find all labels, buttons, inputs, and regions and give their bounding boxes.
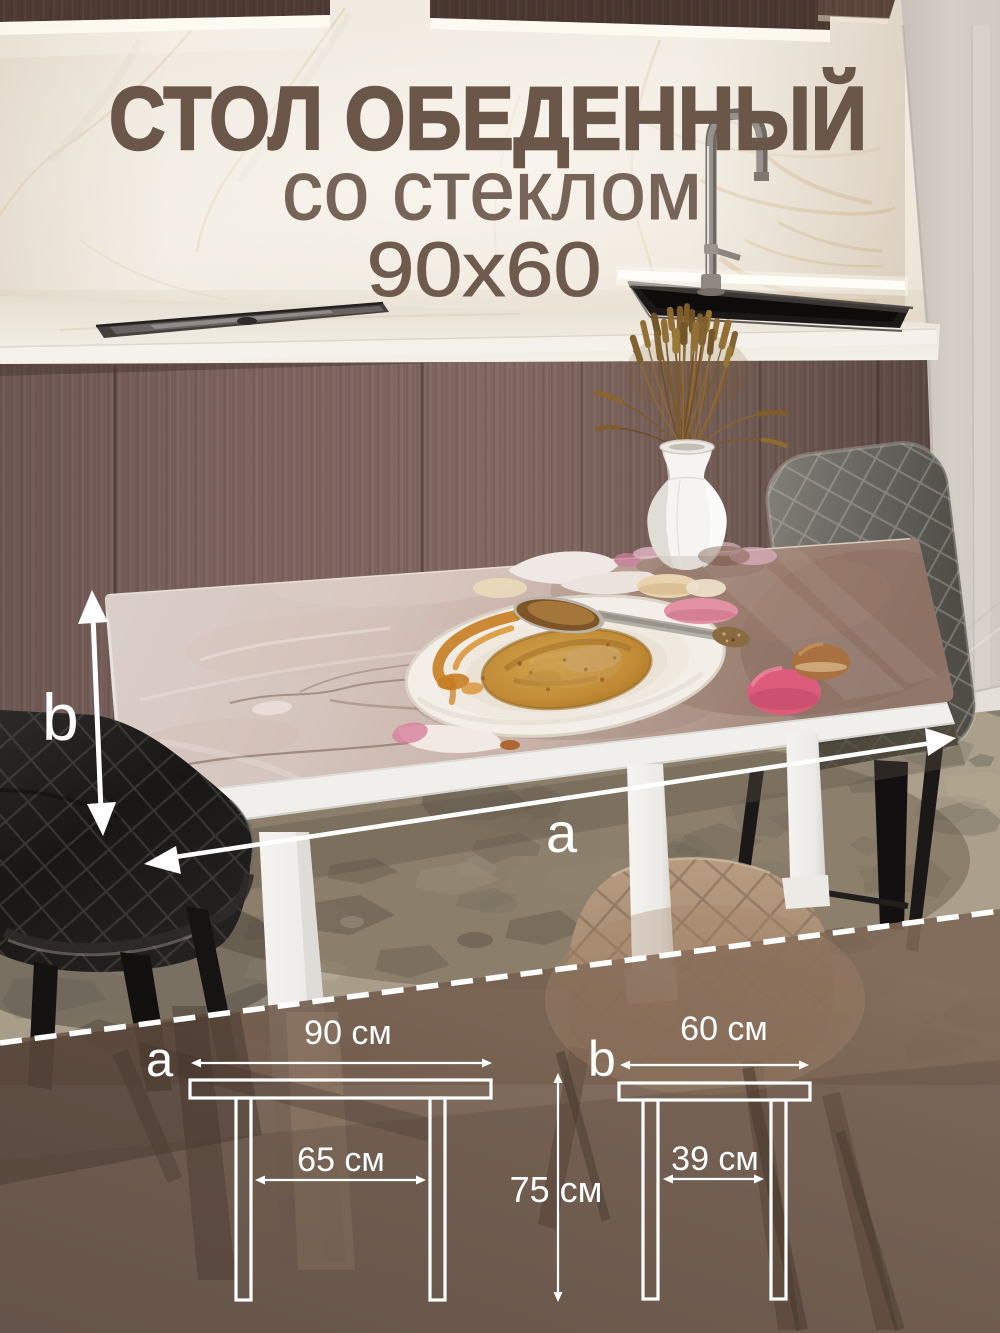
svg-text:65 см: 65 см	[297, 1141, 385, 1179]
svg-text:90х60: 90х60	[367, 227, 602, 313]
svg-text:39 см: 39 см	[671, 1140, 759, 1178]
svg-text:75 см: 75 см	[510, 1169, 603, 1210]
svg-text:60 см: 60 см	[680, 1010, 768, 1048]
svg-text:a: a	[546, 801, 578, 864]
svg-text:b: b	[588, 1031, 616, 1087]
svg-text:b: b	[42, 680, 79, 754]
svg-text:90 см: 90 см	[304, 1014, 392, 1052]
svg-text:со стеклом: со стеклом	[282, 143, 702, 237]
svg-text:a: a	[146, 1033, 174, 1087]
